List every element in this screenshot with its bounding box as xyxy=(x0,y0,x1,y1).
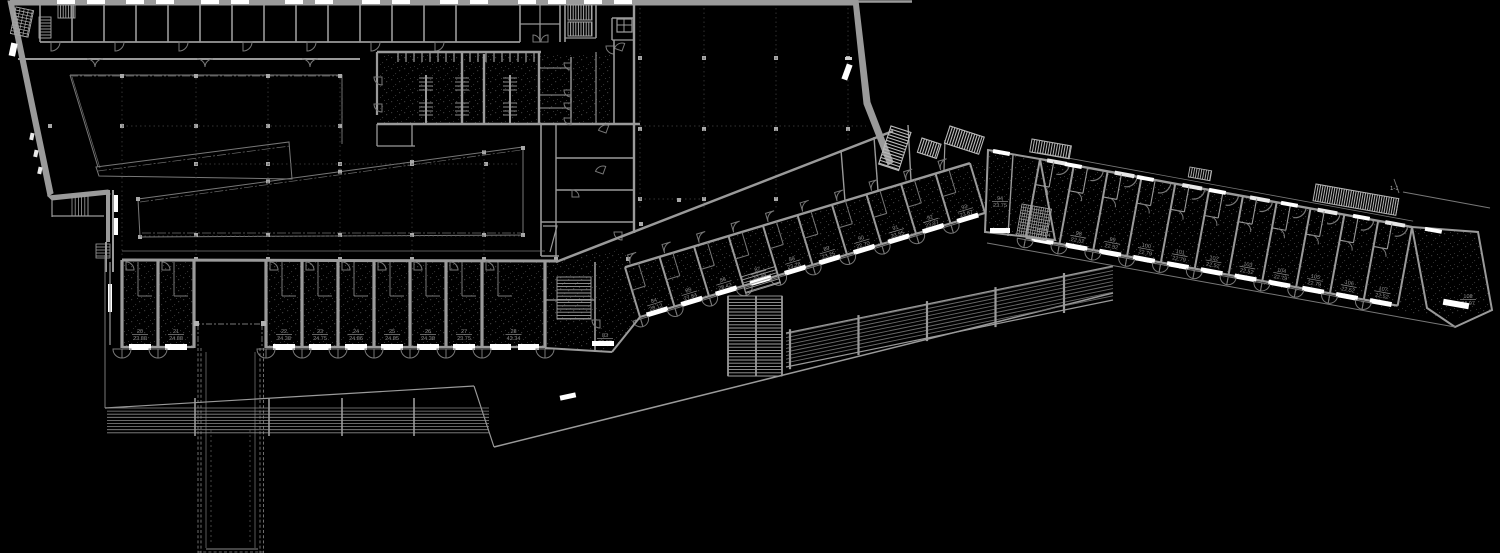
svg-text:24.88: 24.88 xyxy=(169,336,183,342)
svg-text:27: 27 xyxy=(461,329,467,335)
svg-text:21: 21 xyxy=(173,329,179,335)
svg-text:24.85: 24.85 xyxy=(385,336,399,342)
svg-text:108: 108 xyxy=(1463,294,1472,300)
svg-text:23.88: 23.88 xyxy=(133,336,147,342)
svg-text:26: 26 xyxy=(425,329,431,335)
svg-text:24.38: 24.38 xyxy=(421,336,435,342)
svg-text:20: 20 xyxy=(137,329,143,335)
svg-text:24.38: 24.38 xyxy=(277,336,291,342)
svg-text:28: 28 xyxy=(510,329,516,335)
svg-text:23.75: 23.75 xyxy=(993,203,1007,209)
svg-text:23.75: 23.75 xyxy=(457,336,471,342)
svg-text:94: 94 xyxy=(997,196,1003,202)
svg-text:24.86: 24.86 xyxy=(349,336,363,342)
svg-text:43.34: 43.34 xyxy=(507,336,521,342)
svg-text:22: 22 xyxy=(281,329,287,335)
svg-text:24: 24 xyxy=(353,329,359,335)
svg-text:24.75: 24.75 xyxy=(313,336,327,342)
svg-text:83: 83 xyxy=(602,333,608,339)
svg-text:23: 23 xyxy=(317,329,323,335)
svg-text:25: 25 xyxy=(389,329,395,335)
